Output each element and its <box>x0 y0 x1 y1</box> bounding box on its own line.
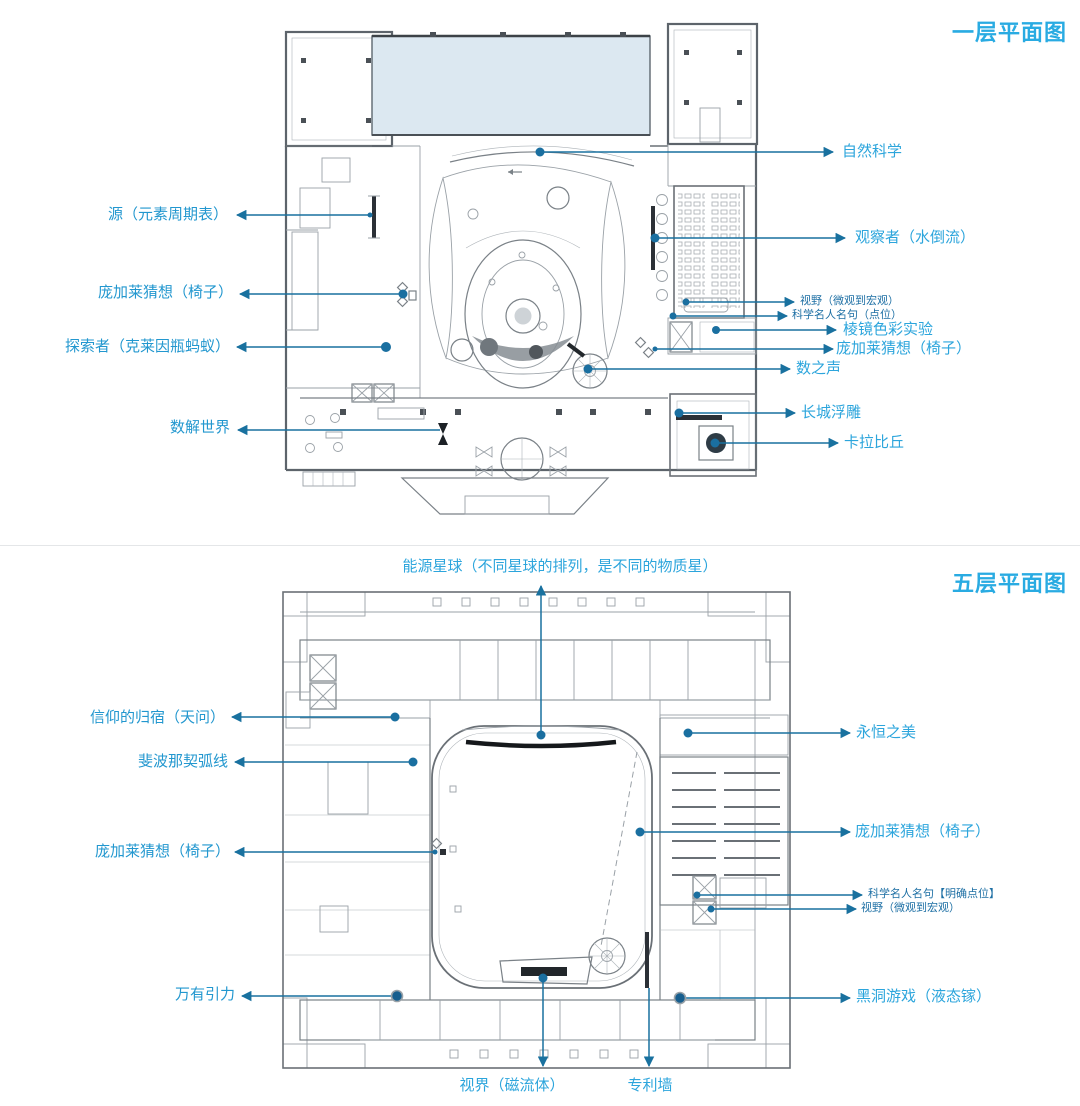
patent-wall <box>645 932 649 988</box>
calabi-yau-room <box>670 394 756 476</box>
label-floor5-faith-home: 信仰的归宿（天问） <box>90 709 225 727</box>
auditorium-seats <box>678 192 705 308</box>
floor1-plan <box>286 24 757 514</box>
math-world-exhibit <box>438 423 448 445</box>
auditorium-seats <box>711 192 740 308</box>
label-floor1-sound-of-numbers: 数之声 <box>796 360 841 378</box>
terrace-columns-bottom <box>450 1050 638 1058</box>
floorplan-canvas <box>0 0 1080 1106</box>
spiral-staircase <box>589 938 625 974</box>
scalloped-wall <box>657 195 668 301</box>
atrium-exhibit-curves <box>429 146 634 388</box>
label-floor1-periodic-table: 源（元素周期表） <box>108 206 228 224</box>
label-floor1-explorer: 探索者（克莱因瓶蚂蚁） <box>65 338 230 356</box>
entrance-canopy <box>402 478 608 514</box>
floor1-topright-block <box>668 24 757 144</box>
label-floor5-black-hole-game: 黑洞游戏（液态镓） <box>856 988 991 1006</box>
reception-desk <box>378 408 424 419</box>
label-floor5-patent-wall: 专利墙 <box>600 1077 700 1095</box>
label-floor1-great-wall-relief: 长城浮雕 <box>801 404 861 422</box>
chair-markers-right <box>636 338 654 358</box>
great-wall-relief <box>676 415 722 420</box>
terrace-columns-top <box>433 598 644 606</box>
label-floor1-poincare-left: 庞加莱猜想（椅子） <box>98 284 233 302</box>
label-floor1-observer: 观察者（水倒流） <box>855 229 975 247</box>
cafe-tables <box>306 414 343 453</box>
lobby-bowtie-columns <box>476 447 566 476</box>
central-hall <box>432 726 652 988</box>
floor1-title: 一层平面图 <box>952 15 1067 47</box>
label-floor5-gravity: 万有引力 <box>175 986 235 1004</box>
stair-icon <box>286 692 310 728</box>
stair-icon <box>700 108 720 142</box>
label-floor1-field-of-view: 视野（微观到宏观） <box>800 295 899 308</box>
floor5-title: 五层平面图 <box>952 566 1067 598</box>
lobby-compass-circle <box>501 438 543 480</box>
periodic-table-exhibit <box>372 196 376 238</box>
floorplan-sheet: 一层平面图 五层平面图 源（元素周期表） 庞加莱猜想（椅子） 探索者（克莱因瓶蚂… <box>0 0 1080 1106</box>
restroom-stalls <box>328 762 368 814</box>
label-floor5-poincare-right: 庞加莱猜想（椅子） <box>855 823 990 841</box>
water-pool <box>372 36 650 135</box>
label-floor1-natural-science: 自然科学 <box>842 143 902 161</box>
label-floor5-energy-planets: 能源星球（不同星球的排列，是不同的物质星） <box>400 558 720 576</box>
prism-lab-tables <box>700 322 754 352</box>
label-floor5-event-horizon: 视界（磁流体） <box>432 1077 592 1095</box>
label-floor1-prism-color-lab: 棱镜色彩实验 <box>843 321 933 339</box>
label-floor5-fibonacci-arc: 斐波那契弧线 <box>138 753 228 771</box>
section-divider <box>0 545 1080 546</box>
label-floor5-eternal-beauty: 永恒之美 <box>856 724 916 742</box>
label-floor5-poincare-left: 庞加莱猜想（椅子） <box>95 843 230 861</box>
label-floor1-calabi-yau: 卡拉比丘 <box>844 434 904 452</box>
exhibit-hall-rows <box>660 757 788 905</box>
auditorium <box>674 186 744 318</box>
label-floor1-poincare-right: 庞加莱猜想（椅子） <box>836 340 971 358</box>
label-floor5-field-of-view: 视野（微观到宏观） <box>861 902 960 915</box>
stair-icon <box>300 188 330 228</box>
label-floor5-science-quotes: 科学名人名句【明确点位】 <box>868 888 1000 901</box>
label-floor1-math-world: 数解世界 <box>170 419 230 437</box>
